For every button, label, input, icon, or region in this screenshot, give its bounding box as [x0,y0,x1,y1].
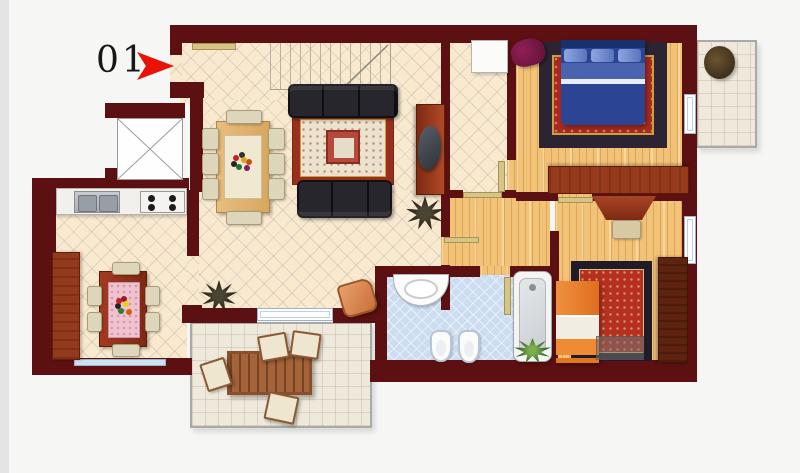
wall-elevator-top [105,103,185,118]
dining-table [216,121,270,213]
kitchen-cabinet [52,252,80,360]
kitchen-window [74,359,166,366]
balcony-plant [704,46,735,79]
kitchen-chair [112,262,140,275]
dresser [548,166,689,194]
flower-centerpiece [233,155,239,161]
bed-sheet [556,315,599,339]
balcony-door-opening [684,94,696,134]
bedside-unit [596,336,644,360]
kitchen-table-runner [108,282,140,338]
table-runner [224,135,262,199]
living-rug [293,112,393,184]
unit-number-label: 01 [96,40,148,81]
corridor-white-door [471,40,508,73]
dining-chair [226,211,262,225]
kitchen-sink [74,191,120,213]
wall-west-top [170,25,182,55]
wardrobe [658,257,688,363]
double-bed [561,40,645,125]
sofa-top [288,84,398,118]
dining-chair [268,178,285,200]
bed-pillow [564,49,587,62]
wall-bottom-right [370,360,697,382]
toilet [430,330,452,362]
dining-chair [226,110,262,124]
wall-kitchen-right [187,190,199,256]
kitchen-chair [87,286,102,306]
kitchen-chair [145,312,160,332]
dining-chair [202,153,219,175]
dining-chair [268,128,285,150]
kitchen-table [99,271,147,347]
kitchen-chair [87,312,102,332]
sofa-bottom [297,180,392,218]
wall-living-south-a [187,308,257,323]
bedroom-doorway-floor [507,160,516,193]
bathroom-door-leaf [504,277,511,315]
bedroom-second-door-leaf [558,197,593,203]
rug-medallion [326,130,360,164]
living-south-window [257,308,333,321]
dining-chair [202,178,219,200]
corridor-hall-door-leaf [463,192,502,198]
hall-floor [448,196,550,268]
wall-bathroom-left [375,266,387,362]
living-room-floor [187,256,199,308]
bathtub-drain [529,284,536,291]
kitchen-chair [112,344,140,357]
staircase [270,43,391,90]
floor-plan: 01 [0,0,800,473]
kitchen-chair [145,286,160,306]
wall-corridor-bottom-a [447,190,463,198]
desk-chair [612,220,641,239]
bed-footboard [556,358,599,363]
elevator-shaft [117,118,183,180]
single-bed [556,281,599,363]
bidet [458,330,480,363]
entrance-door-leaf [192,43,236,50]
bed-pillow [618,49,641,62]
bed-headboard [561,40,645,48]
dining-chair [202,128,219,150]
bed-pillow [591,49,614,62]
terrace-chair [257,332,290,363]
terrace-chair [289,330,321,360]
stove [140,191,185,213]
terrace-chair [263,391,299,425]
left-edge-strip [0,0,9,473]
entrance-floor [170,55,182,82]
dining-chair [268,153,285,175]
flower-centerpiece [116,298,122,304]
bedroom-main-door-leaf [498,161,505,192]
living-hall-door-leaf [444,237,479,243]
